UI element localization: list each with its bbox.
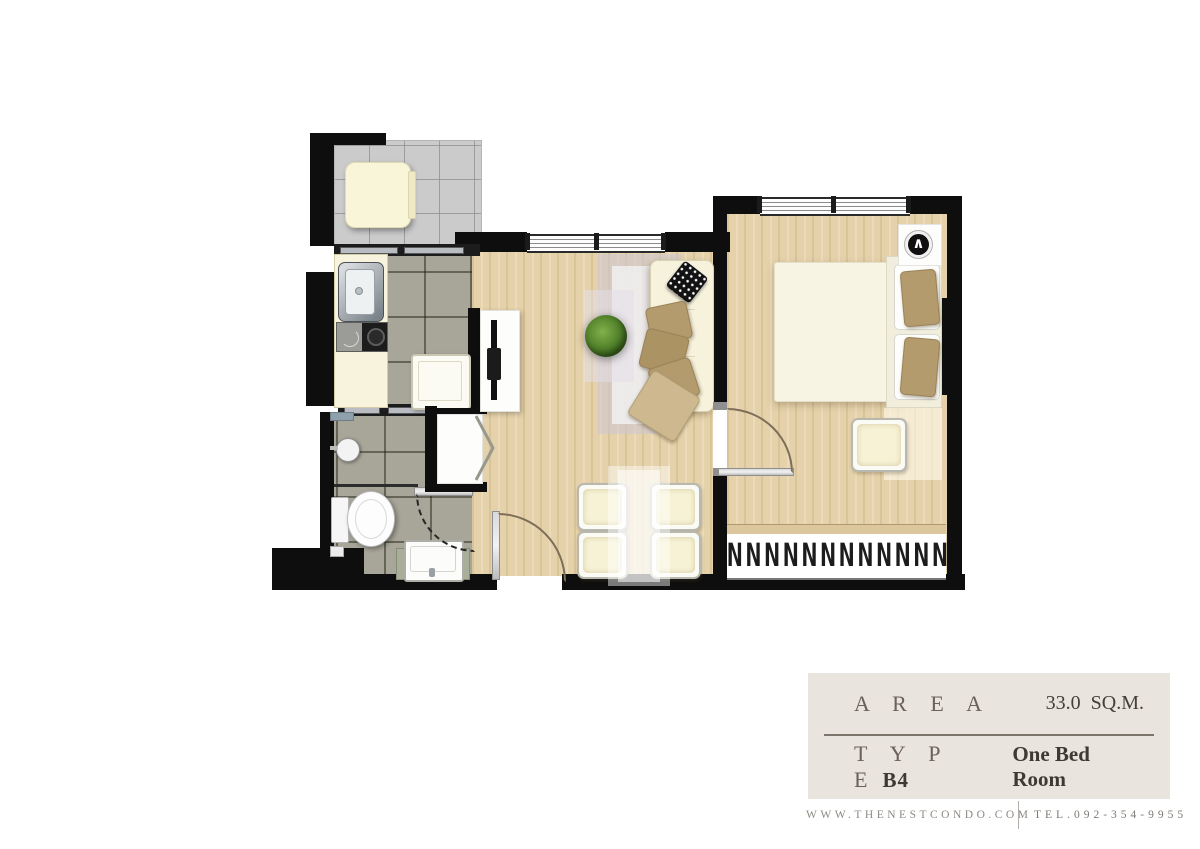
toilet-bowl — [347, 491, 395, 547]
wall-divider-upper — [713, 205, 727, 410]
lamp-icon: ∧ — [904, 230, 933, 259]
window-cap — [757, 196, 762, 213]
area-row: A R E A 33.0 SQ.M. — [808, 673, 1170, 734]
type-label-group: T Y P EB4 — [854, 741, 1012, 793]
bedroom-chair — [851, 418, 907, 472]
cooktop-curve — [341, 329, 359, 347]
closet-door-chevron-icon — [473, 413, 497, 483]
footer: WWW.THENESTCONDO.COM TEL.092-354-9955 — [806, 799, 1200, 831]
wall-divider-lower — [713, 476, 727, 576]
shower-arm — [330, 446, 338, 450]
window-pane — [340, 247, 398, 254]
burner-icon — [367, 328, 385, 346]
wall-balcony-left — [310, 133, 334, 246]
wall-kitchen-left — [306, 272, 334, 406]
floor-plan-page: ∧ NNNNNNNNNNNN A R E A 33.0 SQ.M. T Y P … — [0, 0, 1200, 849]
phone-text: TEL.092-354-9955 — [1034, 809, 1187, 821]
tv-base — [487, 348, 501, 380]
kitchen-sink — [338, 262, 384, 322]
sink-drain — [355, 287, 363, 295]
washing-machine — [345, 162, 411, 228]
shower-partition — [334, 484, 418, 487]
hanger-row-icon: NNNNNNNNNNNN — [727, 529, 946, 583]
window-cap — [594, 233, 599, 250]
window-pane — [404, 247, 464, 254]
dining-table-top — [618, 470, 660, 582]
bed-pillow — [900, 337, 941, 398]
cooktop — [336, 322, 388, 352]
toilet-flush-button — [330, 546, 344, 557]
type-value: One Bed Room — [1012, 742, 1144, 792]
website-text: WWW.THENESTCONDO.COM — [806, 809, 1012, 821]
type-row: T Y P EB4 One Bed Room — [808, 736, 1170, 797]
window-cap — [525, 233, 530, 250]
plant-icon — [585, 315, 627, 357]
chair-cushion — [857, 424, 901, 466]
wardrobe: NNNNNNNNNNNN — [727, 534, 946, 580]
footer-divider — [1018, 801, 1019, 829]
faucet-icon — [429, 568, 435, 577]
window-cap — [906, 196, 911, 213]
closet-wall-left — [425, 406, 437, 486]
shower-head-icon — [336, 438, 360, 462]
area-label: A R E A — [854, 691, 991, 717]
window-cap — [661, 233, 666, 250]
area-value: 33.0 SQ.M. — [1046, 692, 1144, 715]
toilet-seat — [355, 499, 387, 539]
bed-pillow — [900, 269, 941, 328]
wall-right-column — [941, 298, 962, 395]
bedroom-door-frame — [713, 402, 727, 410]
window-cap — [831, 196, 836, 213]
wall-bottom-left-mass — [272, 548, 364, 590]
bathroom-shelf — [330, 412, 354, 421]
washing-machine-flap — [408, 171, 416, 219]
wall-balcony-top — [310, 133, 386, 145]
fridge-inner-line — [418, 361, 462, 401]
wall-bedroom-top-a — [713, 196, 760, 214]
fridge — [411, 354, 471, 410]
type-code: B4 — [882, 768, 909, 792]
lamp-arrow-icon: ∧ — [908, 234, 929, 255]
info-panel: A R E A 33.0 SQ.M. T Y P EB4 One Bed Roo… — [808, 673, 1170, 799]
